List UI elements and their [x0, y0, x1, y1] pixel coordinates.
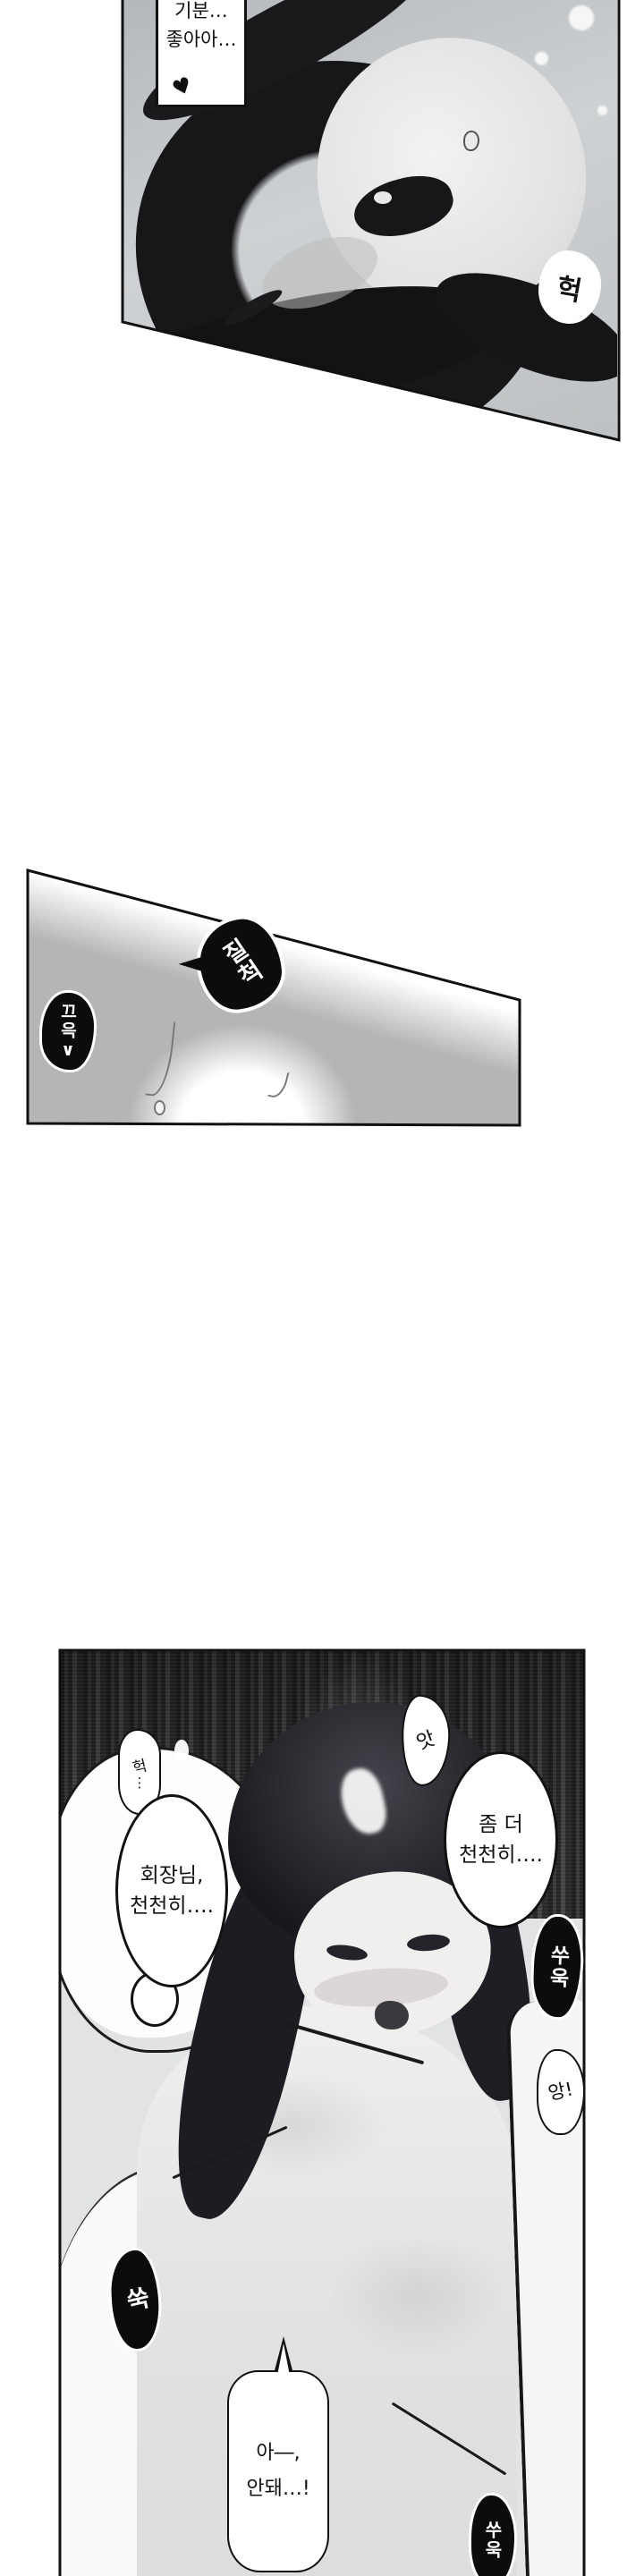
bubble-text-line: 좀 더 — [479, 1809, 523, 1841]
open-mouth-shape — [375, 2001, 409, 2029]
bubble-text-line: 천천히…. — [130, 1891, 214, 1922]
speech-bubble-slower: 좀 더 천천히…. — [444, 1751, 558, 1928]
panel-1-artwork — [0, 0, 644, 447]
bokeh-spot — [535, 52, 548, 65]
speech-bubble-tail-fill — [277, 2343, 290, 2376]
bubble-text-line: 앙! — [546, 2076, 576, 2109]
bubble-text-line: 좋아아… — [166, 26, 237, 55]
webtoon-page: 기분… 좋아아… ♥ 헉 질척 끄윽 ∨ — [0, 0, 644, 2576]
sfx-tail — [179, 957, 202, 971]
bubble-text-line: 아―, — [256, 2436, 300, 2471]
bubble-text-line: 회장님, — [140, 1860, 204, 1892]
speech-bubble-chairman: 회장님, 천천히…. — [115, 1794, 228, 1987]
sfx-text: 헉 — [555, 266, 586, 309]
bokeh-spot — [569, 5, 594, 30]
drip-drop — [154, 1100, 165, 1115]
bubble-text-line: 천천히…. — [459, 1840, 543, 1871]
speech-bubble-ang: 앙! — [537, 2049, 585, 2135]
bubble-text-line: 기분… — [174, 0, 228, 26]
bokeh-spot — [597, 106, 607, 115]
sfx-kkeuk: 끄윽 ∨ — [42, 993, 94, 1070]
chevron-down-icon: ∨ — [61, 1040, 74, 1060]
sfx-text: 끄윽 — [56, 1003, 80, 1040]
eye-highlight — [374, 191, 392, 204]
speech-bubble-feel: 기분… 좋아아… ♥ — [156, 0, 247, 107]
sfx-text: 쑤욱 — [541, 1944, 573, 1989]
sfx-text: 질척 — [212, 933, 270, 996]
sfx-ssuuk-bottom: 쑤욱 — [471, 2495, 514, 2576]
bubble-text-line: 앗 — [412, 1724, 439, 1758]
sfx-text: 쑤욱 — [480, 2521, 506, 2560]
body-shade — [328, 2232, 507, 2357]
sfx-text: 쑥 — [115, 2283, 156, 2316]
speech-bubble-no: 아―, 안돼…! — [227, 2370, 329, 2572]
bubble-text-line: 안돼…! — [246, 2471, 309, 2507]
heart-icon: ♥ — [169, 72, 196, 102]
vertical-ellipsis: ⋮ — [133, 1776, 147, 1790]
